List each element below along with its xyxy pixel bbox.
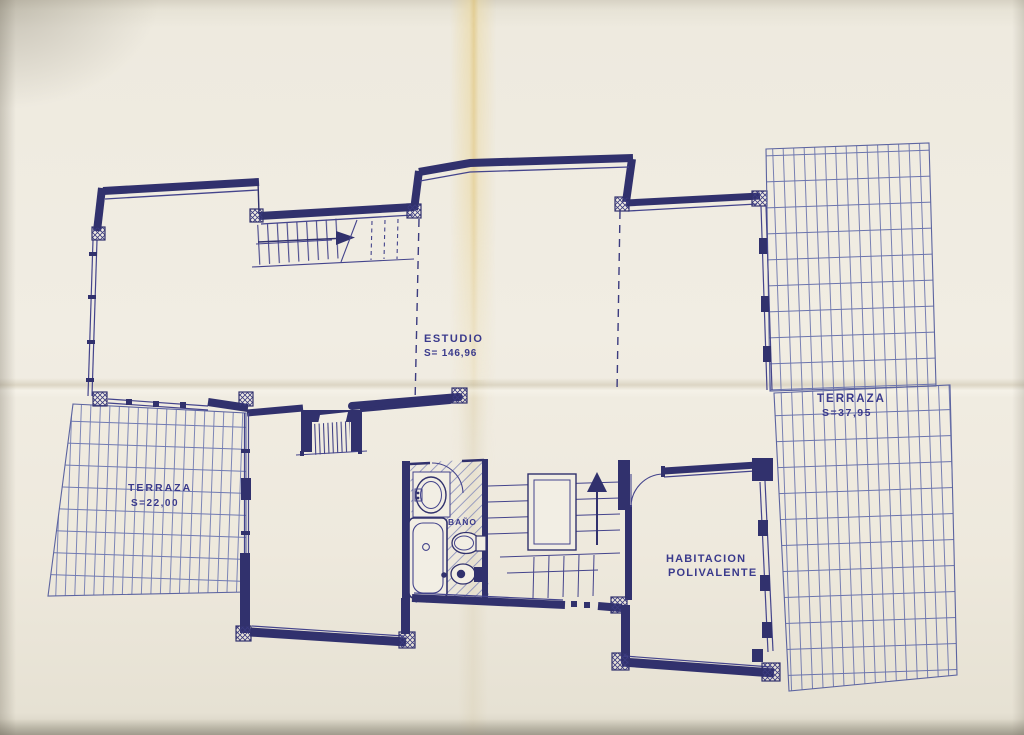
bano-label: BAÑO bbox=[448, 517, 477, 527]
habitacion-polivalente: HABITACION POLIVALENTE bbox=[612, 458, 780, 681]
bidet bbox=[451, 564, 485, 584]
habitacion-label-line2: POLIVALENTE bbox=[668, 567, 757, 579]
lower-right-terrace: TERRAZA S=37,95 bbox=[774, 385, 957, 691]
upper-floor-walls bbox=[86, 158, 760, 396]
floor-plan-drawing: ESTUDIO S= 146,96 TERRAZA S=22,00 bbox=[0, 0, 1024, 735]
terrace-grid-lower-right bbox=[774, 385, 957, 691]
upper-right-terrace bbox=[759, 143, 936, 391]
estudio-void: ESTUDIO S= 146,96 bbox=[415, 211, 620, 404]
terraza-left-area: S=22,00 bbox=[131, 498, 179, 509]
estudio-label: ESTUDIO bbox=[424, 333, 483, 345]
estudio-area: S= 146,96 bbox=[424, 348, 477, 359]
habitacion-label-line1: HABITACION bbox=[666, 553, 746, 565]
left-terrace: TERRAZA S=22,00 bbox=[48, 392, 253, 596]
fireplace bbox=[296, 410, 367, 456]
upper-stair-run bbox=[252, 218, 414, 267]
scanned-blueprint-paper: ESTUDIO S= 146,96 TERRAZA S=22,00 bbox=[0, 0, 1024, 735]
terraza-right-label: TERRAZA bbox=[817, 393, 886, 405]
sink bbox=[413, 472, 450, 517]
stair-flight-outline bbox=[528, 474, 576, 550]
terraza-left-label: TERRAZA bbox=[128, 482, 192, 494]
bathroom-wall-right bbox=[482, 459, 488, 604]
fireplace-hearth-hatch bbox=[313, 421, 350, 455]
habitacion-door-arc bbox=[631, 474, 663, 507]
bathtub bbox=[409, 518, 447, 598]
structural-column-mid bbox=[452, 388, 467, 403]
floor-drain bbox=[441, 572, 447, 578]
toilet bbox=[452, 533, 486, 554]
bathroom: BAÑO bbox=[402, 459, 489, 604]
terrace-grid-upper-right bbox=[766, 143, 936, 391]
terraza-right-area: S=37,95 bbox=[822, 407, 872, 419]
